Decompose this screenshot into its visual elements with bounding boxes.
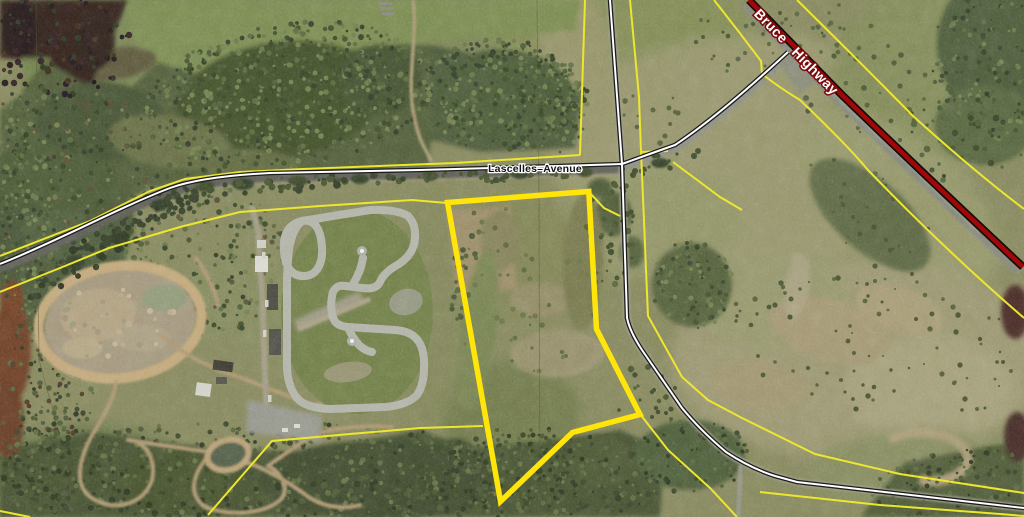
svg-text:Lascelles–Avenue: Lascelles–Avenue bbox=[488, 163, 582, 175]
